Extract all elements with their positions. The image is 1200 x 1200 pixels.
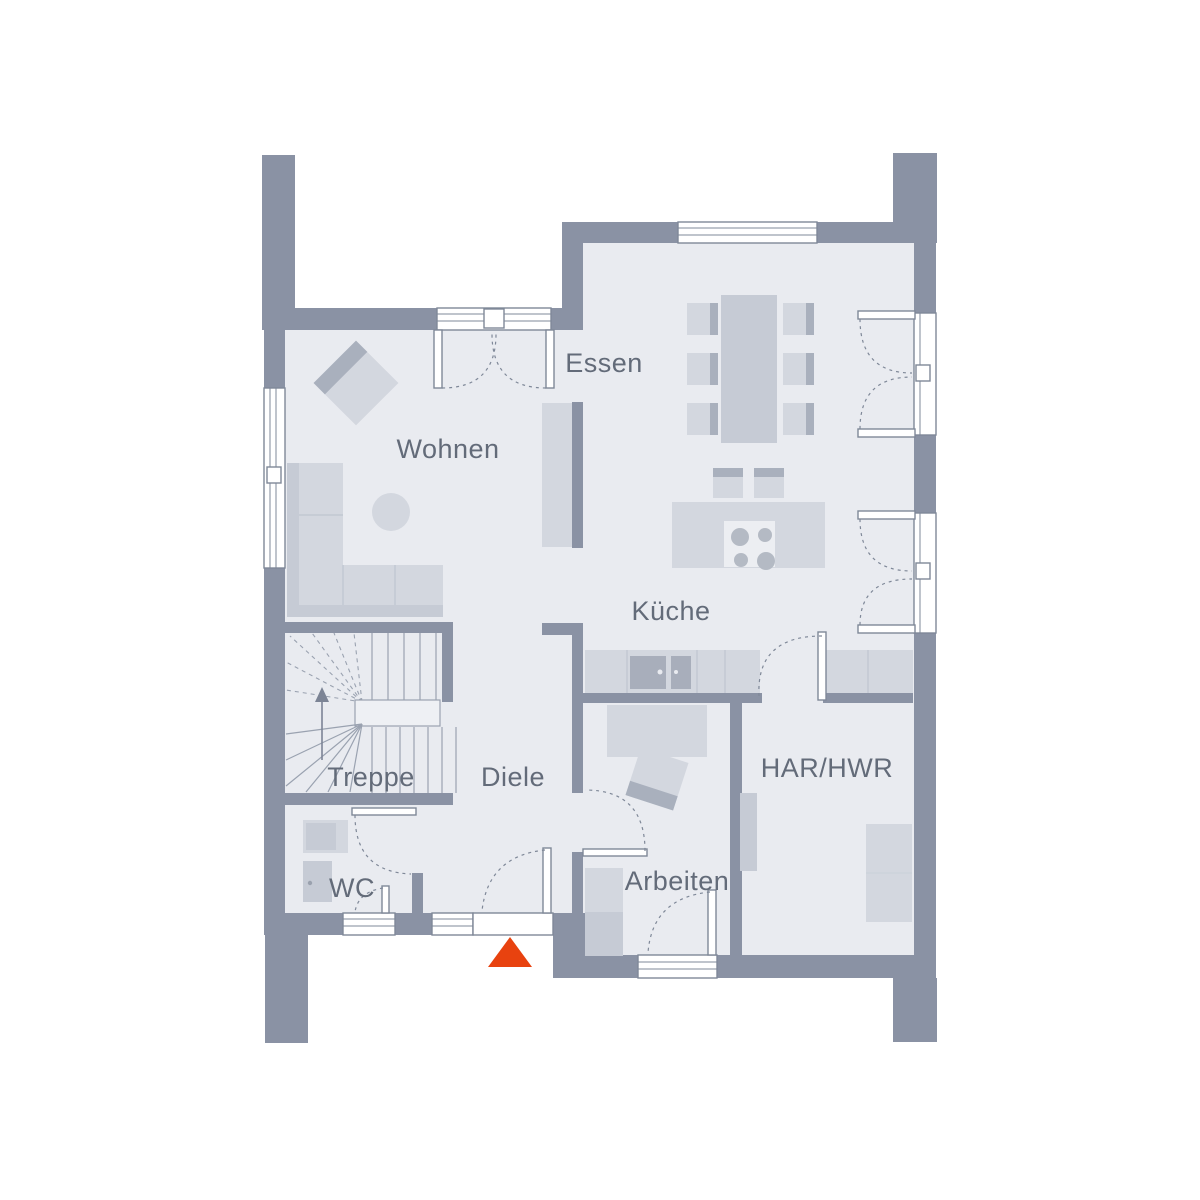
- entrance-marker-icon: [488, 937, 532, 967]
- wall-segment: [914, 633, 936, 958]
- desk-return: [585, 912, 623, 956]
- room-label-essen: Essen: [565, 348, 643, 378]
- kitchen-counter: [585, 650, 913, 693]
- wall-segment: [914, 243, 936, 313]
- wall-segment: [542, 623, 583, 635]
- room-label-kueche: Küche: [631, 596, 710, 626]
- wall-segment: [577, 693, 762, 703]
- wall-segment: [285, 793, 453, 805]
- wall-segment: [285, 308, 437, 330]
- dryer: [866, 874, 912, 922]
- wall-segment: [264, 913, 343, 935]
- wc-toilet: [303, 861, 332, 902]
- stair-landing: [355, 700, 440, 726]
- room-label-diele: Diele: [481, 762, 545, 792]
- wall-segment: [412, 873, 423, 913]
- wall-segment: [264, 568, 285, 935]
- room-label-wc: WC: [329, 873, 375, 903]
- dining-furniture: [687, 295, 814, 443]
- floor-plan-page: Wohnen Essen Küche Treppe Diele WC Arbei…: [0, 0, 1200, 1200]
- kitchen-island: [672, 502, 825, 570]
- window-living: [264, 388, 285, 568]
- wall-segment: [395, 913, 432, 935]
- utility-shelf: [740, 793, 757, 871]
- wall-segment: [442, 633, 453, 702]
- wall-segment: [817, 222, 893, 243]
- wall-segment: [823, 693, 913, 703]
- dining-table: [721, 295, 777, 443]
- wall-segment: [572, 635, 583, 793]
- wall-segment: [572, 852, 583, 913]
- kitchen-appliance: [671, 656, 691, 689]
- wall-segment: [717, 955, 936, 978]
- desk: [585, 868, 623, 912]
- washer: [866, 824, 912, 872]
- floor-plan-drawing: Wohnen Essen Küche Treppe Diele WC Arbei…: [0, 0, 1200, 1200]
- wall-segment: [265, 935, 308, 1043]
- office-sofa: [607, 705, 707, 757]
- wall-segment: [593, 955, 638, 978]
- wall-segment: [264, 308, 285, 388]
- room-label-treppe: Treppe: [327, 762, 415, 792]
- room-label-har-hwr: HAR/HWR: [761, 753, 894, 783]
- wall-segment: [262, 155, 295, 330]
- window-dining: [678, 222, 817, 243]
- wall-segment: [562, 222, 678, 243]
- wall-segment: [893, 978, 937, 1042]
- side-table: [372, 493, 410, 531]
- wall-segment: [893, 153, 937, 243]
- sideboard: [542, 403, 572, 547]
- room-label-wohnen: Wohnen: [396, 434, 499, 464]
- room-label-arbeiten: Arbeiten: [625, 866, 730, 896]
- wall-segment: [285, 622, 453, 633]
- wall-segment: [914, 435, 936, 513]
- wall-segment: [572, 402, 583, 548]
